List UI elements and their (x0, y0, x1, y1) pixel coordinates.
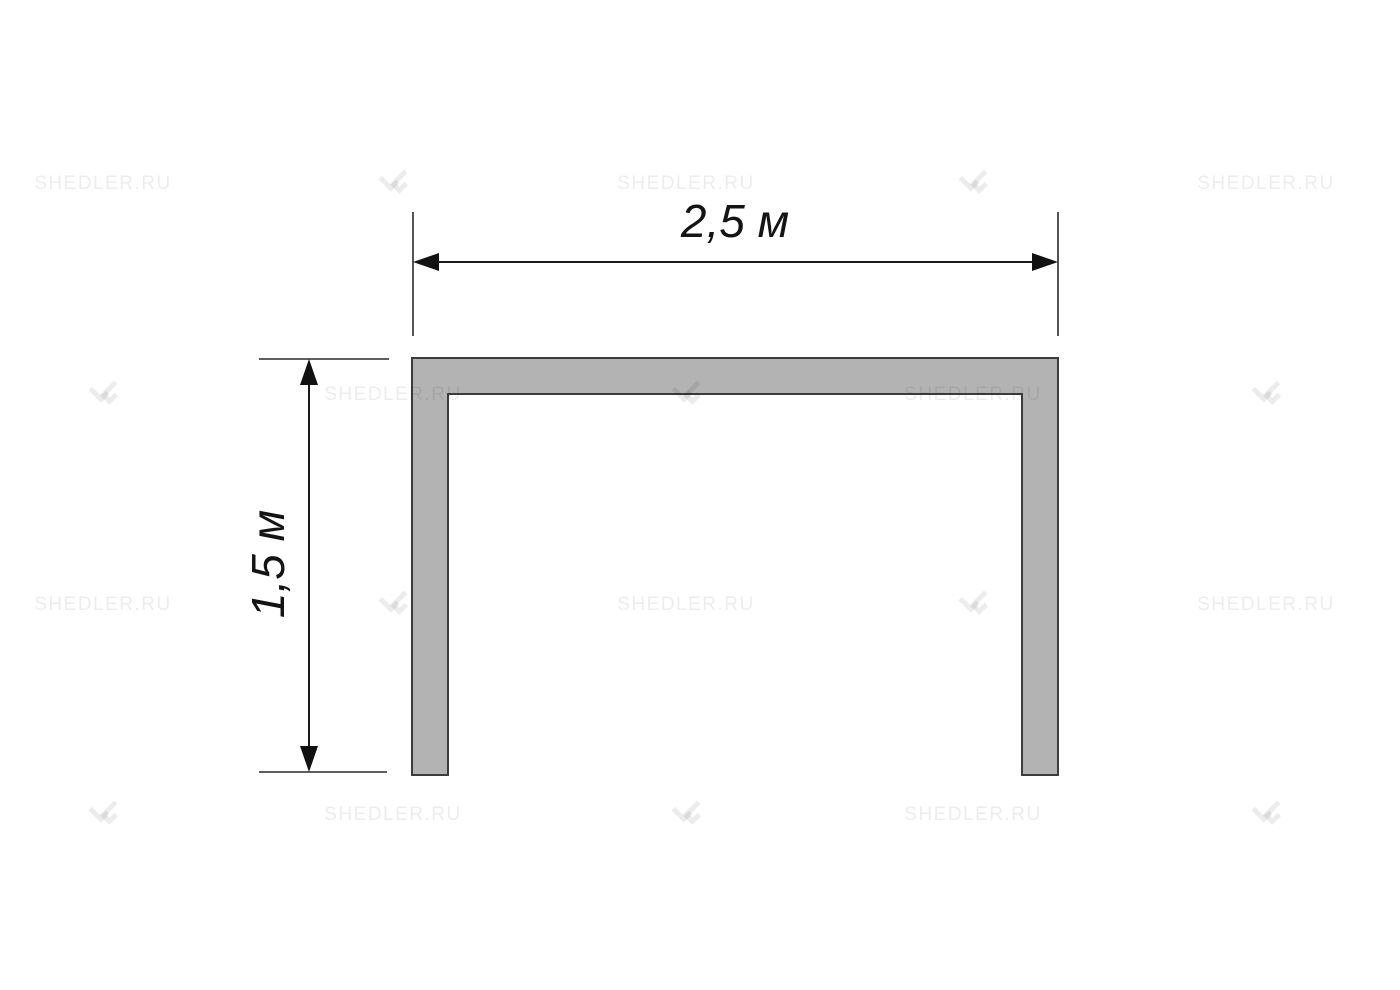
width-arrowhead-right (1032, 253, 1058, 271)
drawing-canvas: SHEDLER.RU SHEDLER.RU SHEDLER.RU SHEDLER… (0, 0, 1400, 990)
height-arrowhead-bottom (300, 746, 318, 772)
u-profile-drawing (0, 0, 1400, 990)
width-dimension-label: 2,5 м (681, 194, 789, 248)
width-arrowhead-left (413, 253, 439, 271)
u-profile-shape (412, 358, 1058, 775)
height-dimension-label: 1,5 м (241, 510, 295, 618)
height-arrowhead-top (300, 359, 318, 385)
